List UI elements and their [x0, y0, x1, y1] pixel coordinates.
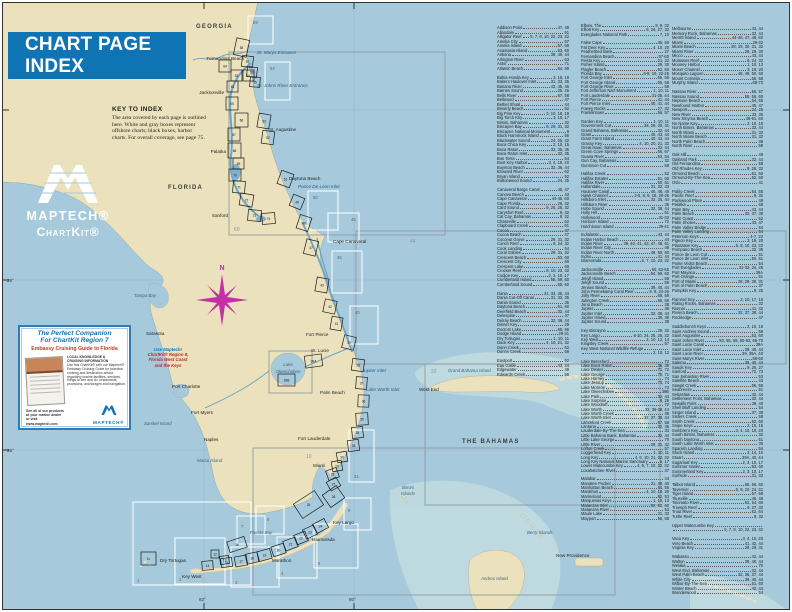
- index-entry-leader: [694, 494, 750, 495]
- ad-title-line1: The Perfect Companion: [20, 330, 129, 337]
- index-entry-leader: [628, 35, 659, 36]
- index-entry-leader: [528, 154, 556, 155]
- index-entry-leader: [688, 110, 750, 111]
- index-entry-leader: [523, 321, 550, 322]
- index-entry-name: Atlantic Beach: [497, 67, 523, 72]
- index-entry-leader: [523, 118, 552, 119]
- chart-box-number: 50: [313, 195, 318, 200]
- index-entry-name: Hutchinson Island: [581, 225, 614, 229]
- index-entry-leader: [700, 503, 743, 504]
- index-entry-leader: [616, 83, 656, 84]
- map-label-fort-pierce: Fort Pierce: [306, 332, 329, 337]
- index-entry-leader: [516, 316, 563, 317]
- chart-box-number: 57: [246, 60, 250, 64]
- index-entry-leader: [528, 199, 551, 200]
- chart-box-number: 59: [253, 20, 258, 25]
- index-entry-leader: [708, 137, 751, 138]
- index-entry-leader: [599, 492, 645, 493]
- map-label-islands: Islands: [401, 491, 416, 496]
- index-entry-leader: [693, 517, 753, 518]
- index-entry-name: Jupiter Sound: [581, 320, 606, 324]
- index-entry-leader: [624, 466, 636, 467]
- page-title: CHART PAGE INDEX: [25, 34, 186, 78]
- index-entry-leader: [607, 401, 659, 402]
- index-entry-leader: [518, 370, 564, 371]
- index-entry-name: Turtle Reef: [672, 515, 692, 520]
- index-entry-leader: [520, 244, 552, 245]
- chart-box-number: 47: [309, 246, 313, 250]
- index-entry-leader: [687, 363, 744, 364]
- index-entry-leader: [533, 181, 557, 182]
- index-entry-pages: 39, 40, 41, 43, 47, 48, 61: [623, 242, 669, 246]
- index-entry-name: Cumberland Sound: [497, 283, 532, 288]
- index-entry-leader: [693, 368, 746, 369]
- index-entry-leader: [607, 322, 663, 323]
- index-entry-leader: [710, 332, 757, 333]
- index-entry-leader: [623, 148, 657, 149]
- index-entry-leader: [537, 82, 550, 83]
- index-entry-leader: [520, 208, 545, 209]
- index-entry-leader: [705, 106, 751, 107]
- index-entry-leader: [582, 353, 652, 354]
- index-entry-leader: [611, 96, 651, 97]
- index-entry-leader: [512, 55, 550, 56]
- index-entry-leader: [708, 286, 757, 287]
- index-entry-leader: [604, 370, 657, 371]
- index-entry-name: Surfside: [672, 474, 687, 479]
- maptech-wordmark: MAPTECH®: [20, 209, 116, 223]
- index-entry-leader: [613, 501, 653, 502]
- chart-box-number: 26: [332, 495, 336, 499]
- chart-box-number: 52: [266, 136, 270, 140]
- chart-box-number: 33: [352, 444, 356, 448]
- chart-box-number: 10: [306, 454, 312, 460]
- index-entry-leader: [612, 418, 643, 419]
- chart-box-number: 12: [213, 552, 217, 556]
- index-entry-leader: [603, 514, 656, 515]
- index-column-3: Melbourne43, 44Memory Rock, Bahamas32, 4…: [672, 27, 763, 596]
- index-entry-name: Everglades National Park: [581, 33, 627, 37]
- index-entry-leader: [615, 440, 663, 441]
- chart-box-number: 16: [235, 543, 239, 547]
- index-entry-leader: [705, 341, 718, 342]
- index-entry-leader: [513, 361, 563, 362]
- index-entry-leader: [707, 408, 757, 409]
- index-entry-leader: [617, 161, 663, 162]
- index-entry-leader: [701, 101, 750, 102]
- index-entry-name: Buttonwood Sound: [497, 179, 532, 184]
- chart-box-number: 31: [354, 474, 359, 479]
- index-entry-leader: [600, 397, 656, 398]
- chart-box-number: 72: [245, 198, 249, 202]
- map-label-fort-myers: Fort Myers: [191, 410, 214, 415]
- index-entry-leader: [673, 530, 723, 531]
- index-entry-leader: [522, 334, 557, 335]
- index-entry-leader: [698, 417, 758, 418]
- index-entry-leader: [715, 128, 751, 129]
- index-entry-leader: [694, 544, 744, 545]
- chart-box-number: 39: [347, 341, 351, 345]
- index-entry-pages: 9, 25: [754, 289, 763, 294]
- chart-box-number: 49: [295, 200, 299, 204]
- index-entry-leader: [688, 476, 751, 477]
- index-entry-leader: [700, 61, 746, 62]
- index-entry-leader: [696, 422, 751, 423]
- index-entry-pages: 55, 58: [658, 517, 669, 521]
- chart-box-number: 27: [332, 482, 336, 486]
- chart-box-number: 53: [262, 119, 266, 123]
- chart-box-number: 23: [308, 530, 312, 534]
- index-entry-leader: [610, 362, 664, 363]
- ad-see-line[interactable]: or visit www.maptech.com: [26, 417, 70, 425]
- index-entry-leader: [705, 575, 736, 576]
- index-entry-leader: [602, 100, 657, 101]
- index-entry-leader: [701, 336, 750, 337]
- index-entry-leader: [523, 127, 545, 128]
- map-label-sanford: Sanford: [212, 213, 229, 218]
- index-entry-leader: [601, 445, 649, 446]
- map-label-naples: Naples: [204, 437, 219, 442]
- index-entry-leader: [690, 557, 751, 558]
- index-entry-leader: [698, 589, 751, 590]
- index-entry-leader: [518, 325, 563, 326]
- index-entry-leader: [611, 104, 650, 105]
- index-entry: Wonderwood54: [672, 591, 763, 596]
- chart-box-number: 40: [355, 310, 360, 315]
- index-entry-leader: [708, 255, 757, 256]
- index-entry-leader: [606, 318, 656, 319]
- index-entry-pages: 68-70: [753, 81, 763, 86]
- map-label-palm-beach: Palm Beach: [320, 390, 345, 395]
- index-entry-leader: [517, 366, 557, 367]
- index-entry-leader: [708, 584, 751, 585]
- maptech-m-icon-small: [101, 405, 117, 415]
- chart-page-index-page: { "banner": {"title": "CHART PAGE INDEX"…: [0, 0, 792, 612]
- index-entry-leader: [605, 383, 657, 384]
- index-entry-leader: [695, 548, 744, 549]
- chart-box-number: 60: [234, 227, 240, 233]
- index-entry-leader: [697, 413, 751, 414]
- index-entry-leader: [607, 331, 657, 332]
- index-entry-leader: [605, 183, 656, 184]
- chart-box-number: 39B: [284, 378, 290, 382]
- longitude-label: 80°: [349, 597, 356, 602]
- chart-box-number: 65: [230, 102, 234, 106]
- chart-box-number: 44: [410, 239, 416, 245]
- index-entry-pages: 2, 10, 12: [653, 351, 669, 355]
- chart-box-number: 67: [232, 133, 236, 137]
- index-entry-pages: 28, 29, 31: [745, 546, 763, 551]
- chartkit-wordmark: ChartKit®: [20, 225, 116, 239]
- map-label-tampa-bay: Tampa Bay: [134, 293, 157, 298]
- ad-body: LOCAL KNOWLEDGE & CRUISING INFORMATION U…: [67, 356, 127, 387]
- map-label-marathon: Marathon: [272, 558, 292, 563]
- index-entry-leader: [619, 152, 657, 153]
- index-entry-leader: [522, 352, 564, 353]
- chart-box-number: 22: [299, 536, 303, 540]
- index-entry-leader: [606, 48, 652, 49]
- index-entry-leader: [524, 91, 557, 92]
- map-label-florida: FLORIDA: [168, 185, 203, 191]
- chart-box-number: 64: [223, 64, 227, 68]
- index-entry-pages: 58: [564, 373, 569, 378]
- index-entry-leader: [711, 178, 751, 179]
- chart-box-number: 17: [239, 559, 243, 563]
- index-entry-leader: [698, 160, 751, 161]
- index-entry-pages: 39-41: [659, 225, 669, 229]
- map-label-daytona-beach: Daytona Beach: [289, 176, 321, 181]
- index-entry-leader: [697, 593, 757, 594]
- index-entry-leader: [605, 209, 650, 210]
- map-label-marco-island: Marco Island: [197, 458, 223, 463]
- index-column-1: Addison Point47, 48Allandale51Alligator …: [497, 26, 569, 377]
- index-entry-pages: 58: [664, 164, 669, 168]
- chart-box-number: 32: [431, 369, 437, 375]
- map-label-the-bahamas: THE BAHAMAS: [462, 439, 520, 445]
- map-label-west-end: West End: [419, 387, 439, 392]
- map-label-jacksonville: Jacksonville: [199, 90, 224, 95]
- index-entry-leader: [694, 219, 757, 220]
- index-entry-pages: 37: [664, 469, 669, 473]
- index-entry-leader: [526, 375, 563, 376]
- map-label-fernandina-beach: Fernandina Beach: [206, 56, 244, 61]
- index-entry-leader: [523, 37, 530, 38]
- chart-box-number: 28: [331, 472, 335, 476]
- index-entry-leader: [520, 348, 564, 349]
- note-line: and the Keys: [136, 363, 200, 368]
- index-entry-pages: 5, 7, 8, 10, 22, 23, 32: [724, 528, 763, 533]
- index-entry-leader: [523, 262, 564, 263]
- index-entry-leader: [524, 69, 556, 70]
- index-entry-pages: 5, 7, 8, 10, 22, 23, 32: [530, 35, 569, 40]
- chart-box-number: 11: [147, 557, 151, 561]
- index-entry-leader: [696, 273, 755, 274]
- region8-note: Use Maptech! ChartKit® Region 8, Florida…: [136, 347, 200, 368]
- chart-box-number: 39A: [311, 359, 318, 363]
- longitude-label: 82°: [199, 597, 206, 602]
- chart-box-number: 46: [351, 217, 356, 222]
- index-entry-leader: [700, 237, 750, 238]
- index-entry-leader: [522, 253, 550, 254]
- chart-box-number: 20: [277, 548, 281, 552]
- index-entry-name: Virginia Key: [672, 546, 694, 551]
- chart-box-number: 25: [307, 503, 311, 507]
- index-entry-leader: [695, 453, 746, 454]
- chart-box-number: 42: [328, 305, 332, 309]
- index-entry-leader: [703, 250, 750, 251]
- index-entry-pages: 5, 7, 10, 23, 32: [642, 259, 669, 263]
- index-entry-leader: [523, 87, 550, 88]
- index-entry-name: Murphy Island: [672, 81, 698, 86]
- index-entry-leader: [522, 271, 545, 272]
- index-entry-leader: [704, 74, 737, 75]
- index-entry-leader: [613, 366, 656, 367]
- embassy-guide-ad: The Perfect Companion For ChartKit Regio…: [18, 325, 131, 430]
- index-entry-leader: [716, 435, 758, 436]
- index-entry-name: Upper Matecumbe Key: [672, 524, 714, 529]
- index-entry-leader: [523, 28, 556, 29]
- index-entry-leader: [613, 78, 657, 79]
- index-entry-leader: [519, 42, 564, 43]
- index-entry-leader: [695, 214, 744, 215]
- index-entry-leader: [612, 423, 656, 424]
- index-entry-name: Wonderwood: [672, 591, 696, 596]
- index-entry-leader: [508, 64, 564, 65]
- index-entry-leader: [532, 280, 549, 281]
- index-entry-pages: 56, 57: [658, 111, 669, 115]
- map-label-andros-island: Andros Island: [480, 576, 508, 581]
- chart-box-number: 41: [335, 322, 339, 326]
- ad-subtitle: Embassy Cruising Guide to Florida: [20, 346, 129, 352]
- map-label-islamorada: Islamorada: [312, 537, 335, 542]
- chart-box-number: 21: [289, 542, 293, 546]
- index-entry-leader: [695, 52, 744, 53]
- index-entry-leader: [690, 490, 735, 491]
- index-entry-leader: [699, 246, 734, 247]
- index-entry-leader: [526, 240, 550, 241]
- index-entry-leader: [697, 38, 731, 39]
- index-entry-leader: [700, 381, 757, 382]
- index-entry-leader: [704, 354, 741, 355]
- index-entry-leader: [597, 519, 657, 520]
- index-entry-leader: [700, 97, 744, 98]
- index-entry-leader: [615, 253, 650, 254]
- index-entry-leader: [531, 141, 550, 142]
- index-entry-leader: [527, 145, 552, 146]
- index-entry-name: Dunns Creek: [497, 350, 521, 355]
- map-label-bimini: Bimini: [402, 485, 415, 490]
- map-label-grand-bahama-island: Grand Bahama Island: [448, 368, 491, 373]
- index-entry-leader: [702, 268, 738, 269]
- index-entry: Mayport55, 58: [581, 517, 669, 521]
- index-entry-pages: 47: [758, 316, 763, 321]
- index-entry-leader: [541, 190, 557, 191]
- chart-box-number: 36: [362, 399, 366, 403]
- index-entry-leader: [637, 91, 653, 92]
- map-label-new-providence: New Providence: [556, 553, 590, 558]
- index-entry-leader: [526, 307, 557, 308]
- chart-box-number: 24: [319, 524, 323, 528]
- index-entry-leader: [606, 388, 664, 389]
- index-entry-leader: [681, 183, 757, 184]
- maptech-brand-block: MAPTECH® ChartKit®: [20, 163, 116, 239]
- index-entry-leader: [702, 350, 744, 351]
- index-entry-leader: [615, 227, 658, 228]
- index-entry-leader: [610, 510, 663, 511]
- index-entry-leader: [605, 65, 656, 66]
- index-entry-pages: 7, 10: [660, 33, 669, 37]
- index-entry-name: Edwards Creek: [497, 373, 525, 378]
- map-label-key-west: Key West: [182, 574, 202, 579]
- key-heading: KEY TO INDEX: [112, 106, 207, 113]
- index-entry-name: Islamorada: [581, 259, 601, 263]
- index-entry-name: Franklintown: [581, 111, 604, 115]
- map-label-ponce-de-leon-inlet: Ponce De Leon Inlet: [298, 184, 340, 189]
- index-entry-leader: [694, 146, 758, 147]
- index-entry-leader: [609, 196, 634, 197]
- map-label-lake: Lake: [283, 362, 293, 367]
- map-label-palatka: Palatka: [211, 149, 227, 154]
- index-entry-name: Mayport: [581, 517, 596, 521]
- index-entry-pages: 57: [664, 342, 669, 346]
- index-entry-leader: [698, 313, 736, 314]
- index-entry-leader: [697, 47, 730, 48]
- index-entry-leader: [697, 291, 753, 292]
- index-entry-leader: [522, 330, 556, 331]
- chart-box-number: 70: [233, 173, 237, 177]
- index-entry-leader: [703, 201, 757, 202]
- index-entry-leader: [699, 83, 752, 84]
- index-entry-pages: 54, 59: [558, 67, 569, 72]
- index-entry-pages: 38: [664, 320, 669, 324]
- map-label-st-marys-entrance: St. Marys Entrance: [257, 50, 297, 55]
- chart-box-number: 43: [320, 283, 324, 287]
- map-label-sarasota: Sarasota: [146, 331, 165, 336]
- index-entry-leader: [707, 327, 746, 328]
- chart-box-number: 61: [247, 74, 251, 78]
- index-entry-leader: [615, 57, 657, 58]
- index-entry-leader: [524, 109, 563, 110]
- index-entry-leader: [693, 390, 758, 391]
- index-entry-leader: [615, 392, 660, 393]
- index-entry-leader: [603, 43, 657, 44]
- map-label-port-charlotte: Port Charlotte: [172, 384, 201, 389]
- index-entry-leader: [698, 508, 746, 509]
- index-entry-pages: 9, 32: [754, 515, 763, 520]
- index-entry-leader: [607, 174, 664, 175]
- map-label-st-lucie: St. Lucie: [311, 348, 329, 353]
- map-label-miami: Miami: [313, 463, 325, 468]
- index-entry-leader: [527, 312, 556, 313]
- index-entry-leader: [609, 179, 656, 180]
- chart-box-number: 48: [302, 221, 306, 225]
- chart-box-number: 58: [240, 46, 244, 50]
- index-entry-leader: [598, 213, 664, 214]
- chart-box-number: 54: [270, 66, 275, 71]
- index-entry-leader: [687, 205, 758, 206]
- index-entry-leader: [601, 296, 657, 297]
- index-entry-leader: [723, 399, 751, 400]
- index-entry-leader: [521, 114, 545, 115]
- chart-box-number: 37: [360, 381, 364, 385]
- map-label-florida-bay: Florida Bay: [250, 530, 273, 535]
- index-entry-leader: [709, 259, 750, 260]
- index-entry-leader: [612, 484, 650, 485]
- index-entry-leader: [518, 96, 557, 97]
- map-label-jupiter-inlet: Jupiter Inlet: [361, 368, 386, 373]
- chart-box-number: 35: [360, 417, 364, 421]
- ad-body-text: Use this ChartKit® with our Maptech® Emb…: [67, 363, 126, 387]
- ad-maptech-wordmark: MAPTECH®: [93, 420, 124, 425]
- index-entry-leader: [695, 196, 753, 197]
- chart-box-number: 63: [231, 85, 235, 89]
- index-entry-leader: [607, 109, 657, 110]
- index-entry-leader: [637, 436, 657, 437]
- index-entry-leader: [684, 56, 751, 57]
- index-entry-pages: 69: [564, 350, 569, 355]
- index-entry-leader: [701, 79, 751, 80]
- index-entry-leader: [706, 142, 757, 143]
- index-entry-name: North River: [672, 144, 693, 149]
- index-entry-leader: [604, 305, 664, 306]
- ad-title-line2: For ChartKit Region 7: [20, 337, 129, 344]
- index-entry-pages: 54: [758, 591, 763, 596]
- index-entry-leader: [602, 261, 640, 262]
- key-body: The area covered by each page is outline…: [112, 115, 207, 141]
- index-entry-leader: [699, 463, 742, 464]
- index-entry-leader: [523, 46, 557, 47]
- index-entry-leader: [524, 172, 564, 173]
